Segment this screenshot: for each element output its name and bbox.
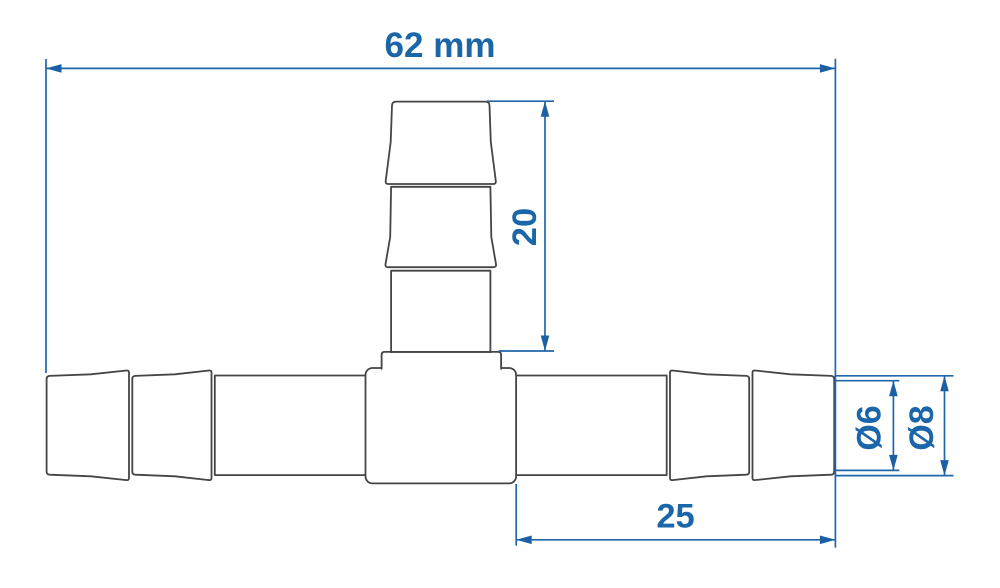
svg-text:Ø6: Ø6 [850,405,888,450]
svg-text:62 mm: 62 mm [385,26,496,65]
svg-text:25: 25 [656,498,694,536]
svg-text:20: 20 [506,208,544,246]
svg-text:Ø8: Ø8 [903,405,941,450]
